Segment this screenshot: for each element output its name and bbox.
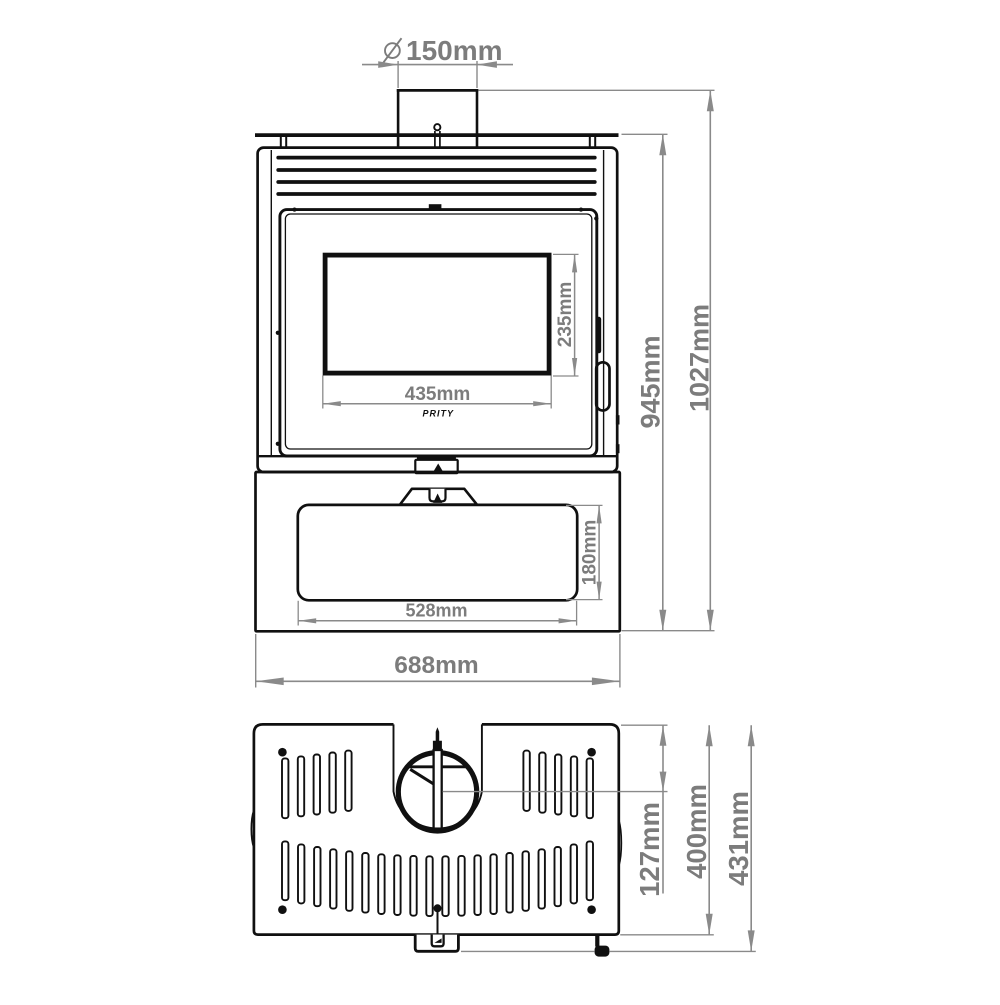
svg-text:431mm: 431mm (723, 791, 754, 886)
svg-text:528mm: 528mm (405, 600, 467, 620)
svg-text:127mm: 127mm (634, 802, 665, 897)
svg-text:688mm: 688mm (394, 652, 478, 679)
svg-text:945mm: 945mm (636, 335, 666, 428)
svg-text:PRITY: PRITY (422, 409, 454, 419)
svg-text:180mm: 180mm (579, 520, 600, 586)
svg-text:235mm: 235mm (555, 282, 576, 348)
svg-text:150mm: 150mm (406, 35, 503, 66)
svg-text:1027mm: 1027mm (685, 304, 715, 412)
svg-text:400mm: 400mm (681, 784, 712, 879)
svg-text:435mm: 435mm (405, 384, 471, 405)
